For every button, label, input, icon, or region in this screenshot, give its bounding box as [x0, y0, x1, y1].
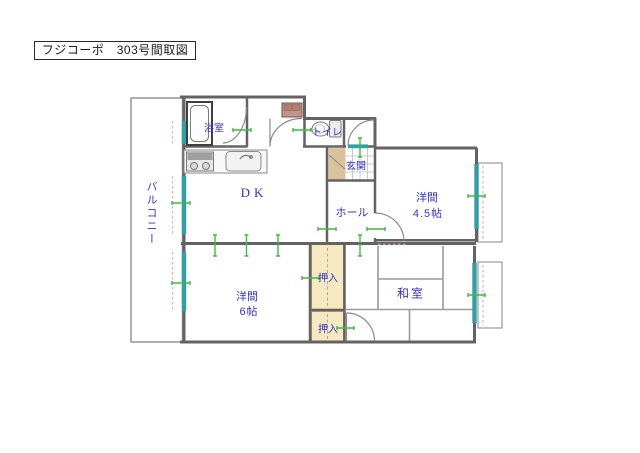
closet-upper-label: 押入	[318, 270, 338, 285]
japanese-room-label: 和室	[397, 285, 425, 302]
toilet-label: トイレ	[312, 124, 342, 139]
hall-label: ホール	[336, 204, 369, 220]
bathroom-label: 浴室	[204, 120, 224, 135]
balcony-label: バルコニー	[143, 181, 159, 246]
bathroom-door-arc	[223, 107, 247, 143]
veranda-right-upper	[478, 163, 502, 242]
western6-name-label: 洋間	[236, 288, 258, 304]
entrance-label: 玄関	[346, 158, 366, 173]
stove	[187, 152, 214, 171]
dk-label: DK	[241, 185, 268, 201]
floorplan-drawing	[0, 0, 640, 453]
sink	[226, 152, 261, 172]
western45-size-label: 4.5帖	[413, 205, 443, 221]
front-door-arc	[348, 120, 374, 146]
japanese-room-door-arc	[347, 313, 375, 341]
toilet-door-arc	[270, 118, 302, 146]
western6-size-label: 6帖	[239, 303, 258, 319]
entry-door-panel	[348, 144, 368, 148]
washing-machine	[282, 103, 302, 117]
kitchen-counter	[184, 150, 267, 173]
western45-name-label: 洋間	[416, 189, 438, 205]
floorplan-page: フジコーポ 303号間取図	[0, 0, 640, 453]
western45-door-arc	[375, 213, 404, 242]
closet-lower-label: 押入	[318, 321, 338, 336]
